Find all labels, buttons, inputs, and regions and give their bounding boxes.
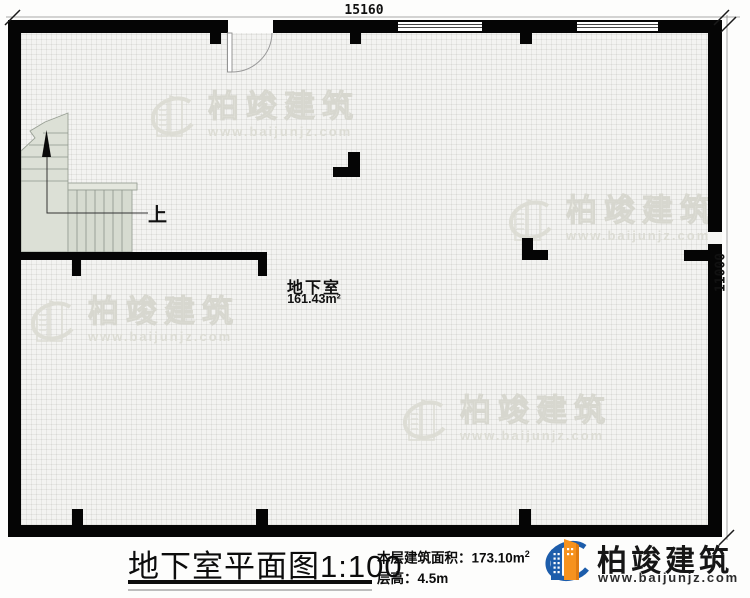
floor-area-value: 173.10m <box>472 551 525 566</box>
interior-wall-stub <box>684 250 708 261</box>
wall-top-segment <box>482 20 577 33</box>
window <box>577 20 658 33</box>
floor-hatch-area <box>21 33 708 525</box>
floor-area-sup: 2 <box>525 549 530 559</box>
wall-stub <box>519 509 531 525</box>
wall-stub <box>256 509 268 525</box>
floor-height-value: 4.5m <box>418 571 449 586</box>
drawing-title-text: 地下室平面图 <box>128 549 320 584</box>
wall-top-segment <box>8 20 228 33</box>
floor-area-label: 本层建筑面积： <box>377 551 472 566</box>
floor-height-label: 层高： <box>377 571 418 586</box>
wall-stub <box>520 33 532 44</box>
wall-stub <box>258 260 267 276</box>
window <box>398 20 482 33</box>
wall-top-segment <box>273 20 398 33</box>
title-underline <box>128 580 372 584</box>
room-area-label: 161.43m² <box>268 292 360 306</box>
wall-stub <box>210 33 221 44</box>
wall-right-opening <box>708 232 722 244</box>
wall-left <box>8 20 21 537</box>
wall-stub <box>350 33 361 44</box>
wall-stub <box>72 509 83 525</box>
interior-wall-stub <box>522 250 548 260</box>
title-underline-thin <box>128 589 372 591</box>
interior-wall-stub <box>333 167 360 177</box>
floor-height-line: 层高：4.5m <box>377 569 530 589</box>
wall-stub <box>72 260 81 276</box>
brand-logo-icon <box>541 536 595 586</box>
basement-floor-plan-page: 柏竣建筑 www.baijunjz.com 柏竣建筑 www.baijunjz.… <box>0 0 750 598</box>
floor-area-line: 本层建筑面积：173.10m2 <box>377 544 530 569</box>
dimension-top-value: 15160 <box>336 3 392 18</box>
brand-url: www.baijunjz.com <box>598 570 739 585</box>
interior-wall <box>18 252 267 260</box>
stairs-up-label: 上 <box>148 200 167 227</box>
dimension-right-value: 11000 <box>714 244 729 302</box>
floor-info: 本层建筑面积：173.10m2 层高：4.5m <box>377 544 530 589</box>
